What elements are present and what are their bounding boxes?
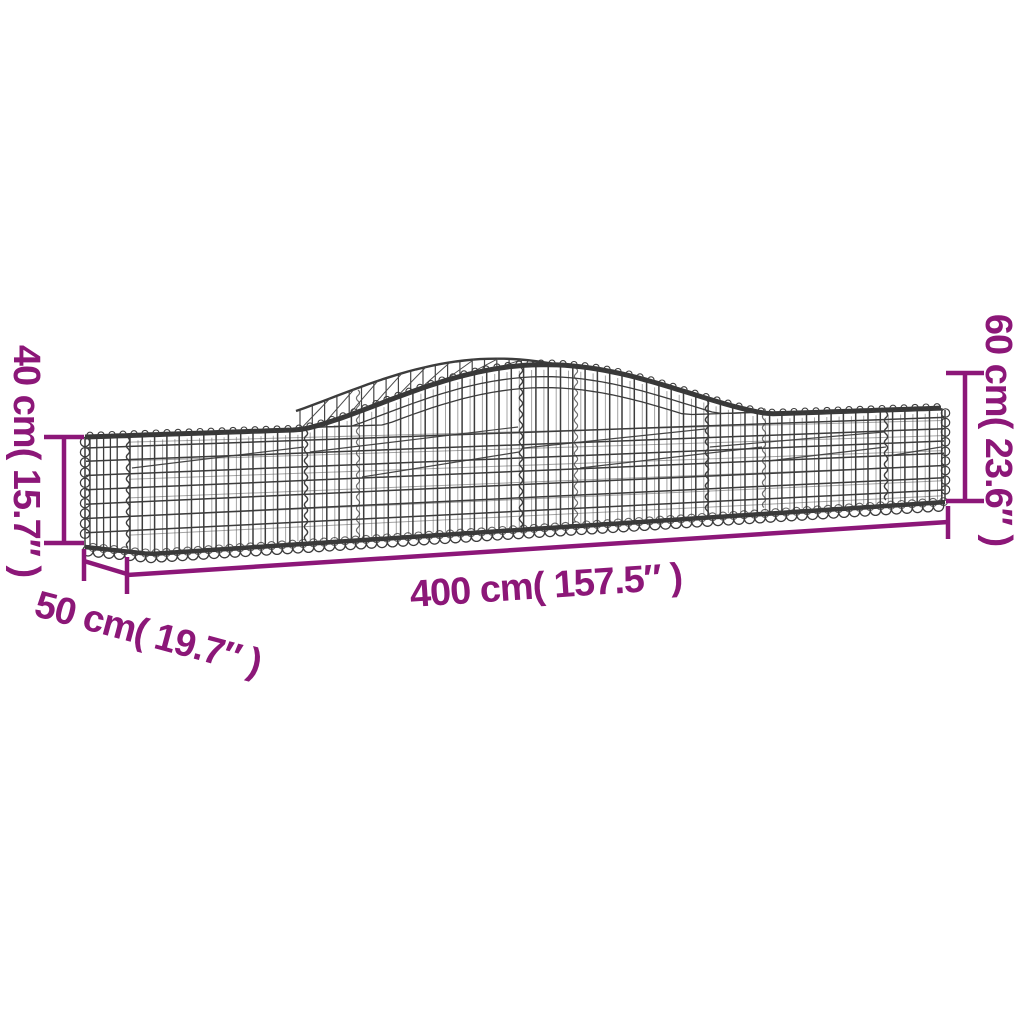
dimension-line-height-left [44,437,84,543]
dimension-line-depth [84,549,127,581]
dimension-label-height-left: 40 cm( 15.7″ ) [7,345,45,577]
gabion-basket-illustration [0,0,1024,1024]
product-dimension-diagram: 40 cm( 15.7″ ) 60 cm( 23.6″ ) 400 cm( 15… [0,0,1024,1024]
dimension-label-height-right: 60 cm( 23.6″ ) [979,314,1017,546]
